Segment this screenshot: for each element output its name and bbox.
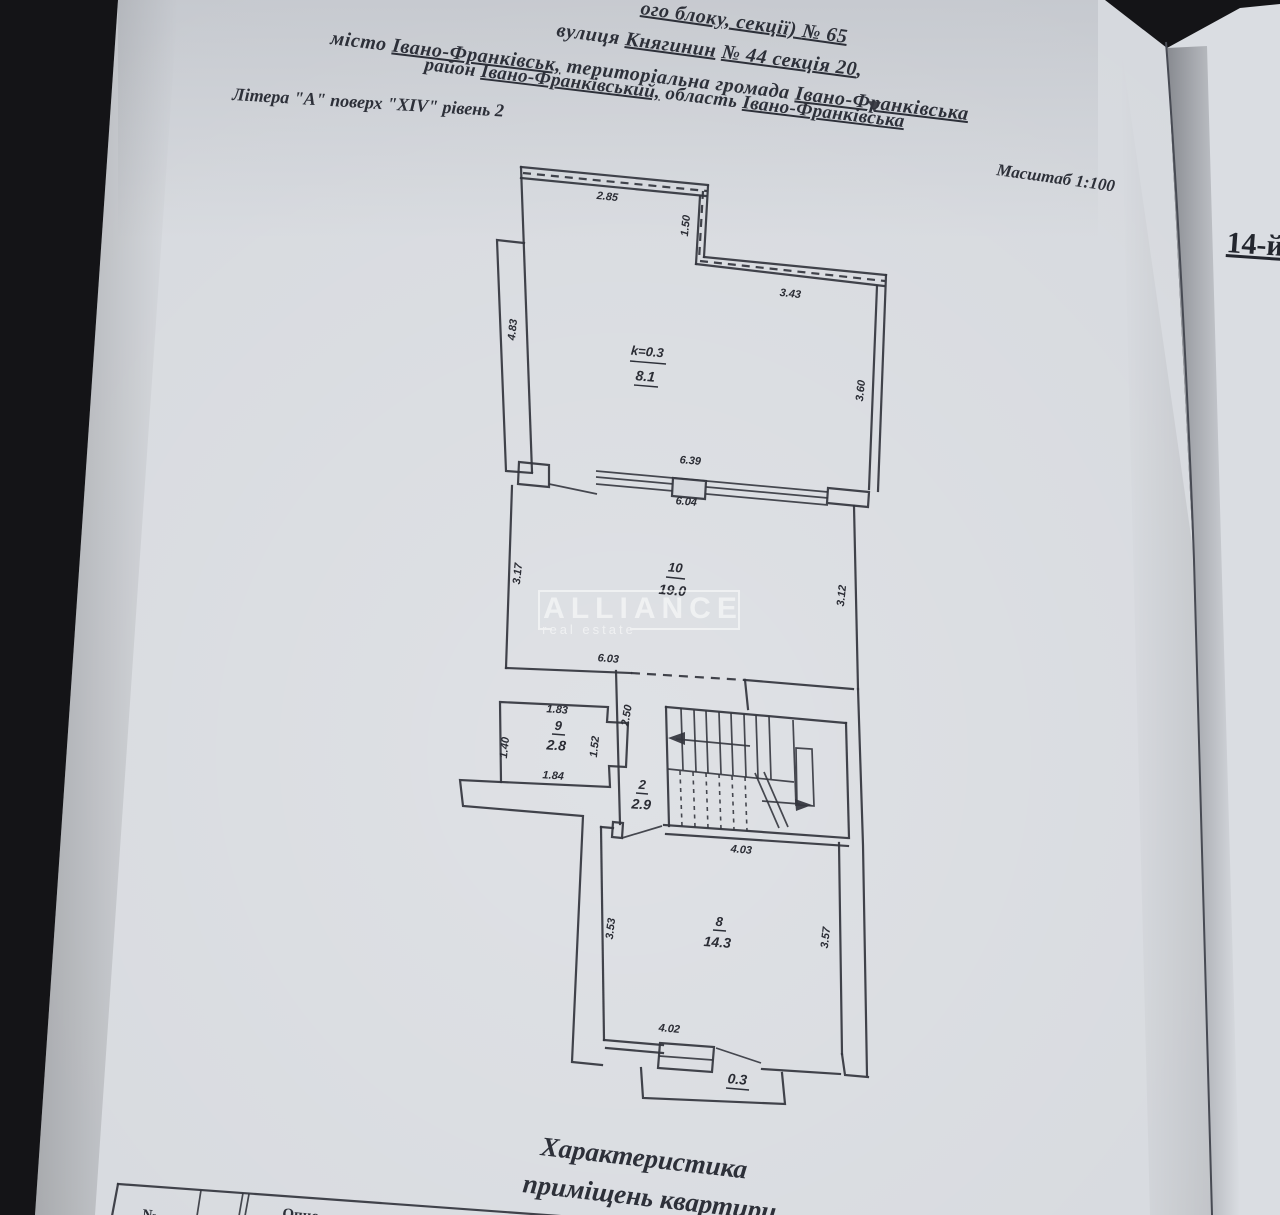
dim-terrace-top-right: 3.43 bbox=[779, 287, 802, 301]
hall-area: 2.9 bbox=[630, 795, 652, 812]
room9-area: 2.8 bbox=[545, 736, 567, 753]
dim-room10-right: 3.12 bbox=[835, 584, 849, 607]
dim-terrace-top: 2.85 bbox=[595, 190, 619, 204]
watermark-subtitle: real estate bbox=[542, 622, 636, 637]
terrace-area-label: 8.1 bbox=[635, 367, 656, 385]
room8-area: 14.3 bbox=[703, 933, 732, 951]
dim-terrace-left: 4.83 bbox=[506, 318, 520, 342]
dim-room10-left: 3.17 bbox=[511, 562, 525, 585]
room10-number: 10 bbox=[668, 559, 684, 575]
dim-terrace-notch: 1.50 bbox=[679, 214, 693, 237]
room8-number-underline bbox=[713, 930, 726, 931]
dim-room8-bottom: 4.02 bbox=[657, 1022, 680, 1036]
dim-terrace-right: 3.60 bbox=[854, 379, 868, 402]
next-page-floor-label: 14-й bbox=[1226, 226, 1280, 263]
dim-room10-bottom: 6.03 bbox=[597, 652, 619, 666]
dim-room9-left: 1.40 bbox=[498, 736, 512, 759]
dim-room9-top: 1.83 bbox=[546, 703, 568, 716]
dim-room9-right: 1.52 bbox=[588, 735, 602, 758]
terrace-coef-label: k=0.3 bbox=[630, 343, 665, 361]
room8-top-stub bbox=[601, 827, 613, 828]
dim-room9-bottom: 1.84 bbox=[542, 769, 564, 782]
room9-number-underline bbox=[552, 734, 565, 735]
photo-of-floorplan-document: ого блоку, секції) № 65 вулиця Княгинин … bbox=[0, 0, 1280, 1215]
document-scan: ого блоку, секції) № 65 вулиця Княгинин … bbox=[0, 0, 1280, 1215]
balcony-area: 0.3 bbox=[727, 1070, 748, 1088]
watermark-title: ALLIANCE bbox=[543, 592, 743, 625]
dim-window-inner: 6.04 bbox=[675, 495, 697, 509]
dim-stairs-bottom: 4.03 bbox=[729, 843, 752, 857]
hall-number-underline bbox=[636, 793, 648, 794]
table-col-number: № bbox=[142, 1207, 158, 1215]
dim-window-outer: 6.39 bbox=[679, 454, 702, 468]
